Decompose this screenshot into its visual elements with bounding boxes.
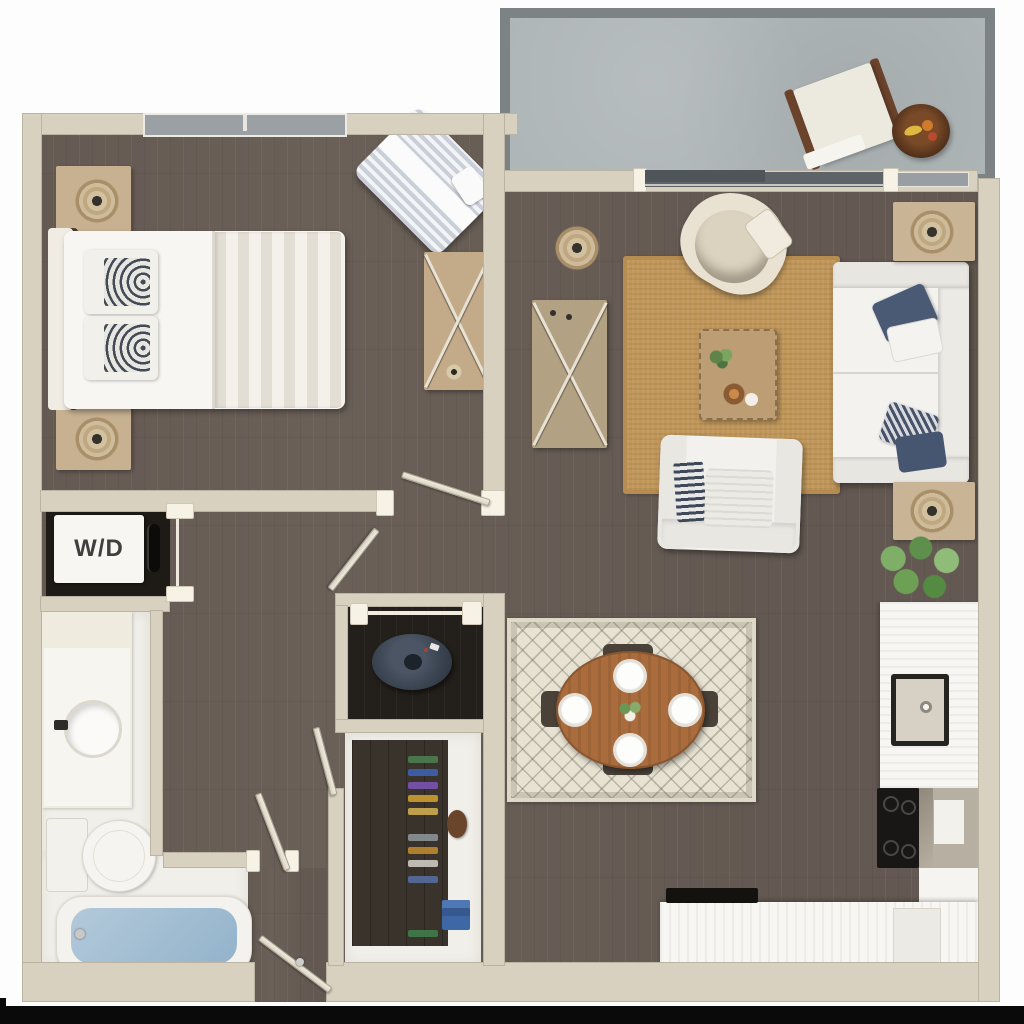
bed-pillow-bottom [84,316,158,380]
sliding-door-track [645,184,883,186]
dining-plate [613,733,647,767]
fruit-orange [922,120,933,131]
potted-plant [876,534,962,604]
closet-folded-towels [442,900,470,930]
corner-cabinet-inner [934,800,964,844]
wall-left [22,113,42,1002]
wall-bath-divider [150,610,163,856]
living-window [897,172,969,187]
kitchen-dishwasher [893,908,941,964]
wall-nook-left [335,605,348,733]
dining-plate [558,693,592,727]
hanging-garment [408,782,438,789]
side-table-lamp-top [910,210,954,254]
bedroom-dresser [424,252,491,390]
wall-bedroom-right [483,113,505,495]
pendant-lamp [553,224,601,272]
balcony [500,8,995,184]
hanging-garment [408,876,438,883]
dresser-decor-dot [446,364,462,380]
burner [883,796,899,812]
balcony-sliding-door [645,172,883,187]
sofa [833,262,969,483]
sofa-seat-seam [833,372,938,374]
laundry-door-track [176,517,179,587]
dining-table [556,651,705,769]
table-dish-decor [723,383,745,405]
corner-cabinet-edge [919,788,933,868]
entry-door-handle [296,958,304,966]
kitchen-counter-connector [919,868,978,904]
nightstand-lamp-bottom [75,417,119,461]
closet-bag [447,810,467,838]
sofa-back-cushion [938,288,969,457]
vanity-basin [64,700,122,758]
floor-plan-canvas: W/D [0,0,1024,1024]
washer-dryer-unit: W/D [54,515,144,583]
dining-centerpiece [617,699,643,723]
kitchen-corner-cabinet [919,788,978,868]
fruit-banana [903,124,923,137]
sink-faucet [920,701,932,713]
jamb-laundry-top [166,503,194,519]
wall-nook-bottom [335,719,505,733]
bathtub-water [71,908,237,964]
hanging-garment [408,860,438,867]
table-plant-decor [709,349,733,369]
fruit-red [928,132,937,141]
jamb-nook-rod-left [350,603,368,625]
side-table-lamp-bottom [910,489,954,533]
toilet-seat-ring [93,830,145,882]
burner [901,800,916,815]
bed-sheet-foldline [212,231,215,409]
bedroom-window-mullion [243,115,247,131]
sun-lounger [783,56,907,173]
wall-bath-top [163,852,258,868]
sofa-pillow-navy [895,431,948,473]
toilet-bowl [82,820,156,892]
table-plate-decor [745,393,758,406]
coffee-table [699,329,777,420]
sliding-door-panel [645,170,765,182]
wall-right [978,178,1000,1002]
bedroom-window [143,113,347,137]
console-knob [550,310,556,316]
console-knob [566,314,572,320]
hanging-garment [408,847,438,854]
jamb-laundry-bottom [166,586,194,602]
burner [883,840,899,856]
bathtub-faucet [75,929,85,939]
armchair-seat-cushion [704,468,774,528]
dryer-door-handle [147,524,160,572]
fruit-bowl [892,104,950,158]
hanging-garment [408,834,438,841]
bed-pillow-top [84,250,158,314]
hanging-garment [408,808,438,815]
nook-chair-center [404,654,422,670]
nightstand-lamp-top [75,179,119,223]
dining-plate [613,659,647,693]
nook-chair-remote [429,643,440,652]
wall-bottom-left [22,962,255,1002]
hanging-garment [408,930,438,937]
hanging-garment [408,756,438,763]
kitchen-range [877,788,919,868]
washer-dryer-label: W/D [54,515,144,583]
wall-bottom-right [326,962,1000,1002]
pillow-pattern [104,258,150,306]
dining-plate [668,693,702,727]
wall-closet-left [328,788,344,966]
pillow-pattern [104,324,150,372]
bed-duvet-striped [215,232,344,408]
burner [901,844,916,859]
nook-chair-speck [424,648,428,652]
tv-console [532,300,607,448]
bathroom-vanity [42,612,132,808]
hanging-garment [408,795,438,802]
armchair [657,435,803,554]
armchair-pillow-striped [673,461,707,523]
sofa-armrest-top [833,262,969,288]
jamb-nook-rod-right [462,601,482,625]
kitchen-appliance-black [666,888,758,903]
hanging-garment [408,769,438,776]
kitchen-sink [891,674,949,746]
wall-closet-right [483,593,505,966]
nook-closet-rod [366,611,466,615]
nook-round-chair [372,634,452,690]
vanity-faucet [54,720,68,730]
wall-bedroom-bottom [40,490,390,512]
bottom-frame-bar [0,1006,1024,1024]
jamb-bedroom-door-left [376,490,394,516]
jamb-bath-door-left [246,850,260,872]
